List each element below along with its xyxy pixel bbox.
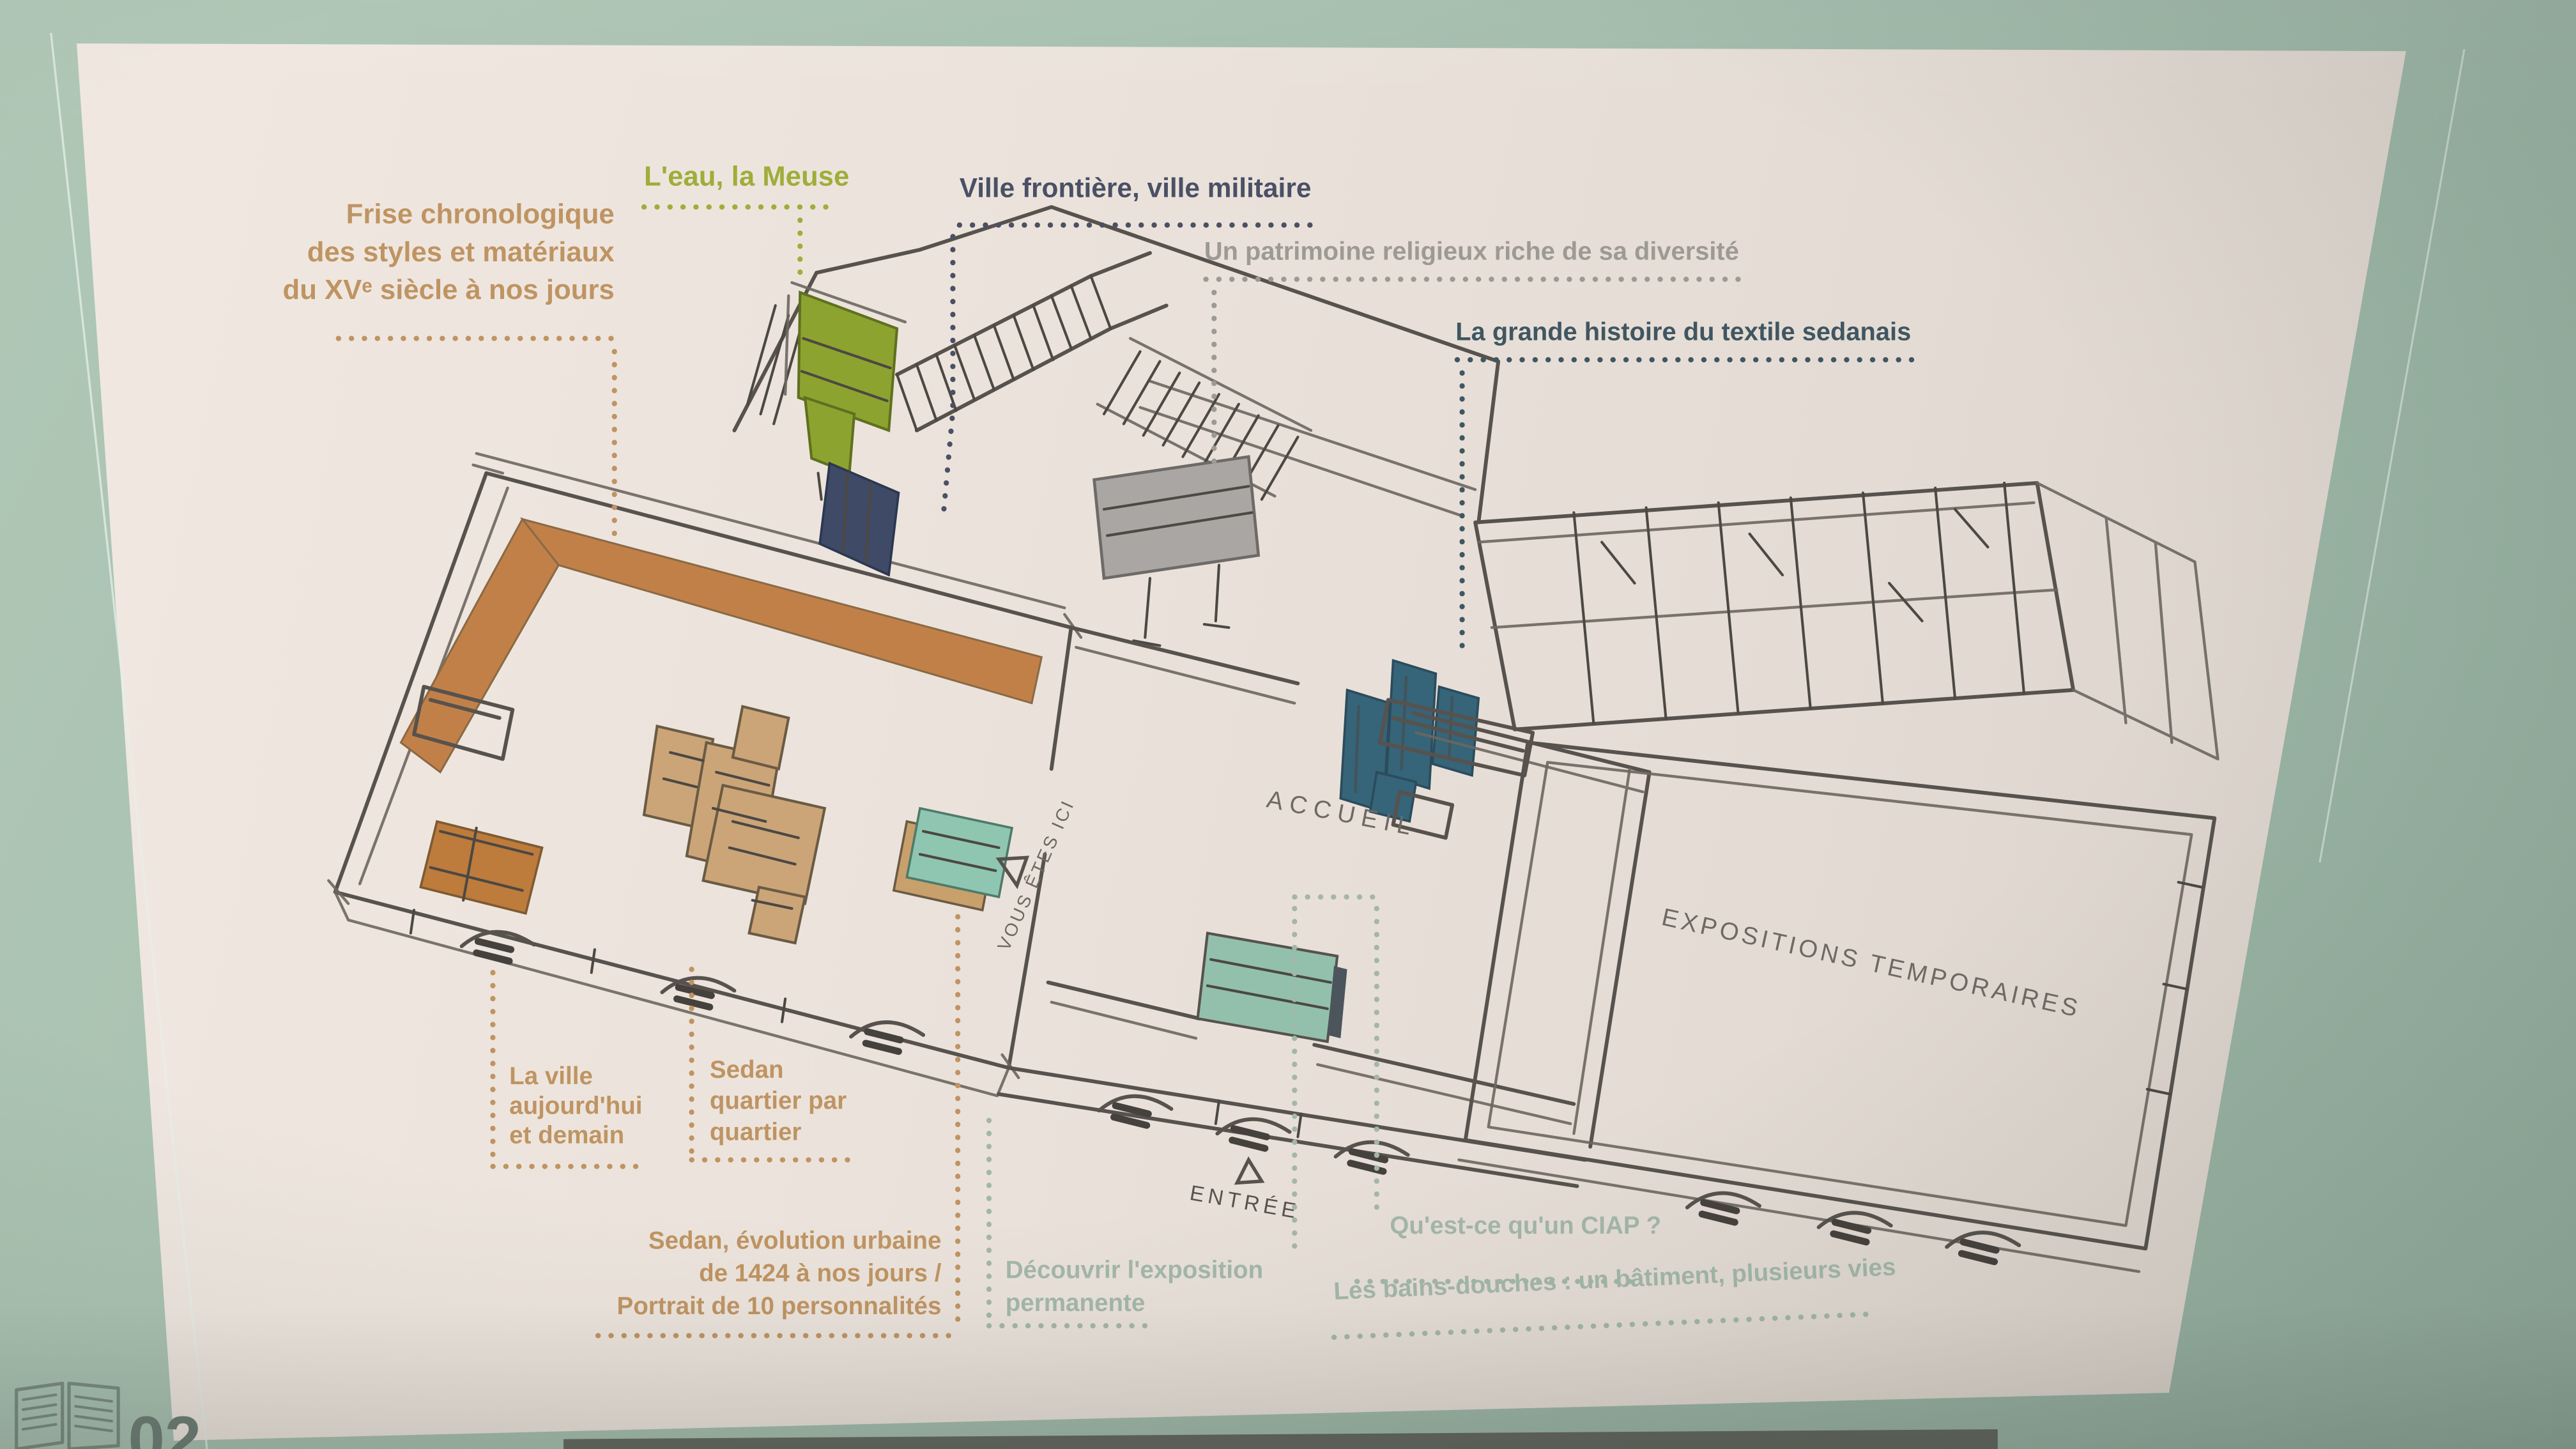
orange-table — [420, 822, 542, 914]
legend-text: de 1424 à nos jours / — [699, 1260, 942, 1287]
legend-frise-chronologique: Frise chronologique des styles et matéri… — [283, 199, 615, 305]
legend-text: Portrait de 10 personnalités — [617, 1292, 942, 1320]
staircase — [897, 253, 1167, 431]
wall-edge-highlight-left — [51, 33, 207, 1449]
right-wing-rooms — [1475, 483, 2218, 759]
legend-text: des styles et matériaux — [307, 236, 615, 268]
legend-ciap: Qu'est-ce qu'un CIAP ? — [1390, 1212, 1661, 1239]
expo-hall-walls — [1459, 742, 2214, 1271]
textile-machines — [1340, 661, 1478, 822]
legend-decouvrir-expo: Découvrir l'exposition permanente — [1006, 1257, 1263, 1317]
legend-text: quartier par — [710, 1087, 847, 1115]
here-bench — [894, 808, 1012, 910]
baths-panel — [1198, 933, 1347, 1042]
triangle-icon — [1237, 1160, 1262, 1183]
entree-label: ENTRÉE — [1188, 1181, 1301, 1224]
floor-shadow-strip — [563, 1429, 1998, 1449]
wall-edge-highlight-right — [2320, 49, 2464, 862]
legend-text: du XVᵉ siècle à nos jours — [283, 274, 615, 305]
leader-frise — [339, 339, 615, 546]
leader-lines — [339, 207, 1917, 1337]
vous-etes-ici-label: VOUS ÊTES ICI — [993, 796, 1078, 954]
legend-eau-meuse: L'eau, la Meuse — [644, 161, 849, 192]
leader-bains-douches — [1334, 1314, 1866, 1337]
leader-eau — [644, 207, 831, 282]
leader-patrimoine — [1206, 279, 1744, 470]
legend-text: aujourd'hui — [509, 1092, 642, 1119]
legend-sedan-evolution: Sedan, évolution urbaine de 1424 à nos j… — [617, 1227, 942, 1320]
religious-panel — [1094, 457, 1259, 646]
legend-patrimoine-religieux: Un patrimoine religieux riche de sa dive… — [1204, 237, 1739, 265]
frieze-band — [401, 519, 1041, 772]
legend-textile-sedanais: La grande histoire du textile sedanais — [1455, 318, 1911, 346]
legend-bains-douches: Les bains-douches : un bâtiment, plusieu… — [1333, 1253, 1897, 1305]
legend-text: et demain — [509, 1122, 624, 1149]
legend-text: Frise chronologique — [346, 199, 615, 230]
military-cabinet — [820, 463, 898, 575]
city-model — [644, 707, 825, 943]
entree-marker: ENTRÉE — [1188, 1160, 1301, 1223]
vous-etes-ici-marker: VOUS ÊTES ICI — [993, 796, 1078, 954]
legend-ville-frontiere: Ville frontière, ville militaire — [960, 173, 1312, 203]
legend-la-ville: La ville aujourd'hui et demain — [509, 1062, 642, 1149]
legend-text: Découvrir l'exposition — [1006, 1257, 1263, 1284]
footer: 02 — [17, 1383, 201, 1449]
legend-text: permanente — [1006, 1289, 1146, 1317]
legend-text: La ville — [509, 1062, 593, 1090]
open-book-icon — [17, 1383, 118, 1449]
legend-text: Sedan — [710, 1056, 784, 1084]
legend-text: Sedan, évolution urbaine — [648, 1227, 942, 1254]
floorplan-drawing: ACCUEIL EXPOSITIONS TEMPORAIRES VOUS ÊTE… — [0, 0, 2576, 1449]
legend-text: quartier — [710, 1119, 802, 1146]
legend-sedan-quartier: Sedan quartier par quartier — [710, 1056, 847, 1146]
page-number: 02 — [128, 1403, 201, 1449]
photo-scene: ACCUEIL EXPOSITIONS TEMPORAIRES VOUS ÊTE… — [0, 0, 2576, 1449]
room-label-expositions-temporaires: EXPOSITIONS TEMPORAIRES — [1659, 903, 2083, 1023]
